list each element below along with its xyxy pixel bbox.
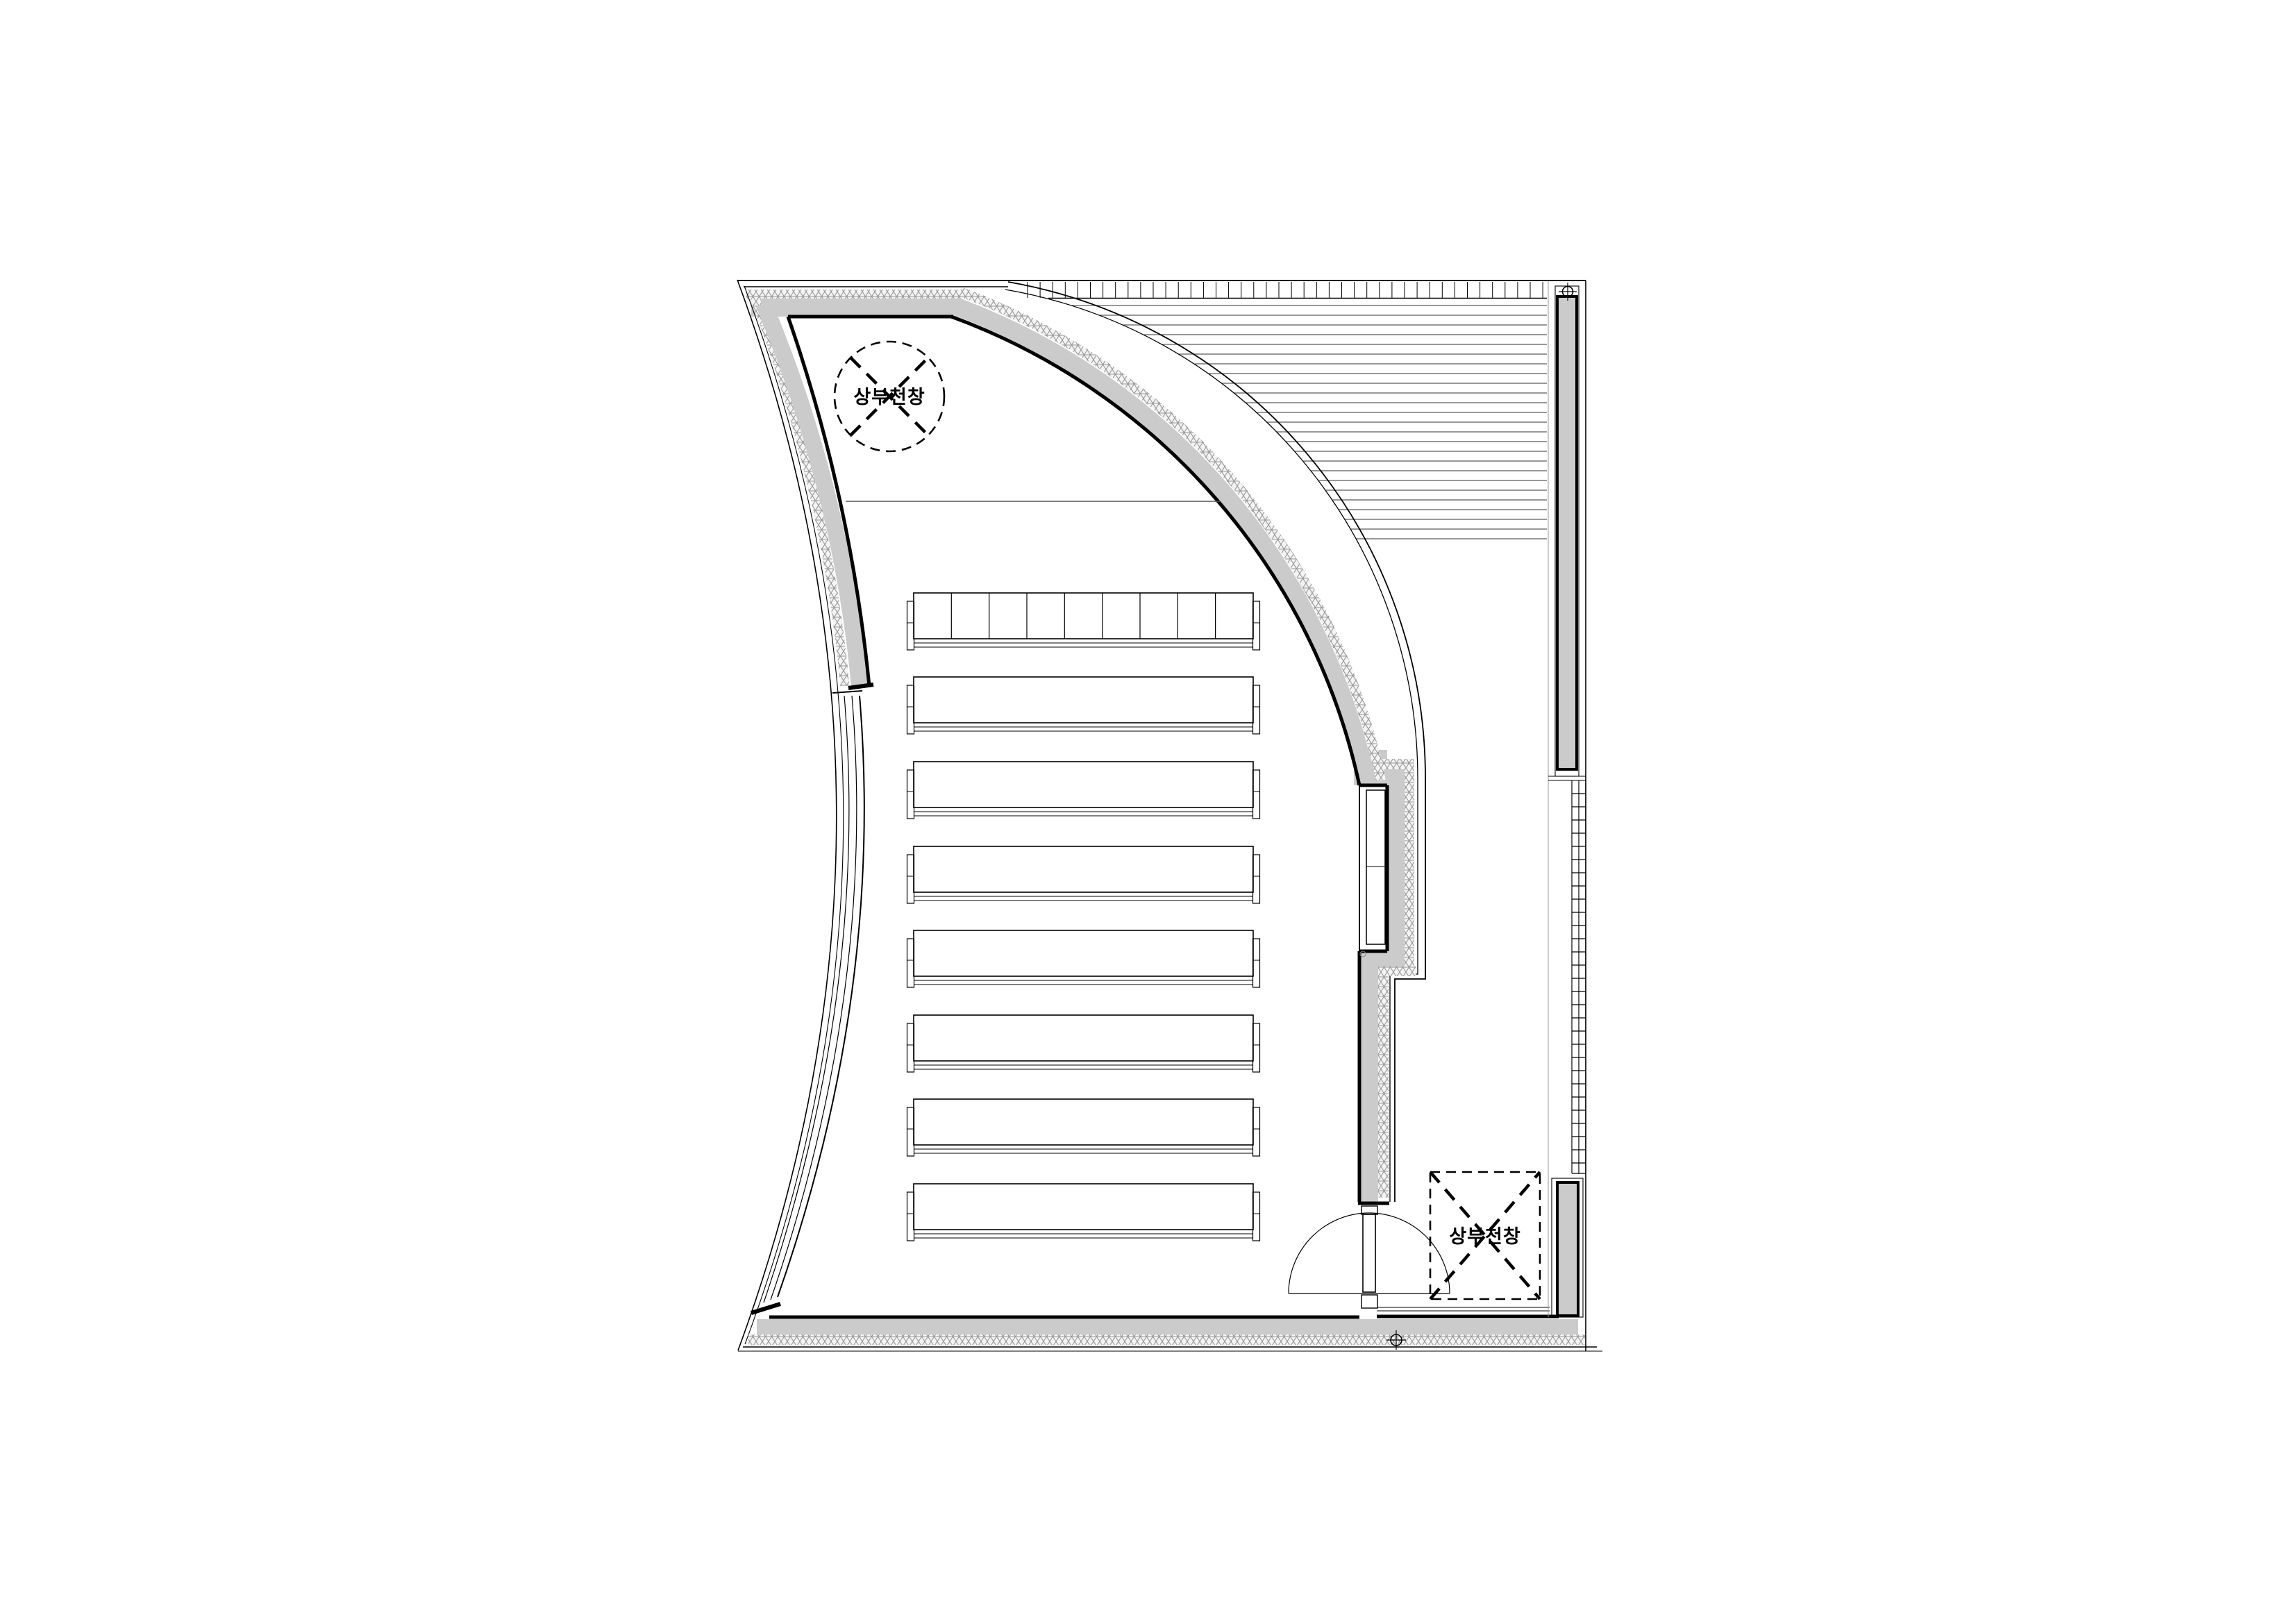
bench-row — [907, 593, 1260, 650]
curved-wall-inner-face — [951, 317, 1359, 785]
right-wall-bar-upper — [1557, 296, 1577, 769]
left-boundary — [737, 280, 844, 1350]
bench-row — [907, 677, 1260, 734]
bench-row — [907, 1099, 1260, 1156]
entrance-door — [1289, 1203, 1450, 1308]
bottom-wall — [738, 1307, 1602, 1351]
floor-plan-page: 상부천창 상부천창 — [0, 0, 2296, 1624]
left-glazed-wall — [751, 696, 864, 1313]
door-jamb-bottom — [1361, 1295, 1377, 1308]
bench-row — [907, 846, 1260, 903]
bench-row — [907, 1015, 1260, 1072]
skylight-circle-label: 상부천창 — [853, 387, 925, 408]
skylight-square: 상부천창 — [1430, 1172, 1540, 1299]
bench-row — [907, 930, 1260, 987]
top-mullion-ticks — [1028, 282, 1543, 298]
ladder-hatch-strip — [1572, 780, 1586, 1173]
curved-wall-gray — [955, 306, 1367, 783]
top-wall-insulation — [746, 290, 965, 299]
right-wall-bar-lower — [1557, 1182, 1578, 1316]
right-wall-zone — [1548, 281, 1586, 1351]
bench-row — [907, 762, 1260, 819]
skylight-square-label: 상부천창 — [1449, 1226, 1520, 1248]
door-leaf — [1363, 1214, 1375, 1292]
wall-cabinet — [1366, 790, 1385, 944]
bench-rows — [907, 593, 1260, 1241]
bench-row — [907, 1184, 1260, 1241]
curved-wall — [951, 292, 1381, 785]
floor-plan-canvas: 상부천창 상부천창 — [0, 0, 2296, 1624]
skylight-circle: 상부천창 — [835, 342, 944, 451]
curved-wall-insulation — [960, 292, 1381, 780]
